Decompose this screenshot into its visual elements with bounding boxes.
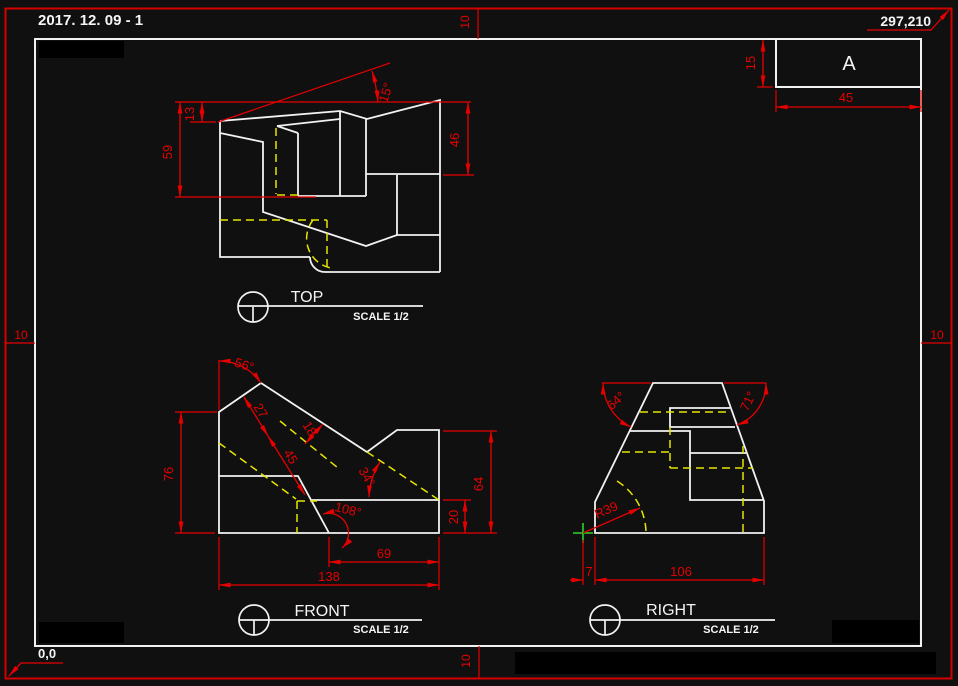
dim-46: 46 bbox=[447, 133, 462, 147]
paper-coord-label: 297,210 bbox=[880, 13, 931, 29]
origin-coord-label: 0,0 bbox=[38, 646, 56, 661]
front-view-geometry bbox=[219, 383, 439, 533]
cad-drawing-area[interactable]: 2017. 12. 09 - 1 297,210 0,0 A 10 10 10 … bbox=[0, 0, 958, 686]
mask-patch bbox=[832, 620, 919, 643]
dim-45: 45 bbox=[839, 90, 853, 105]
margin-label-left: 10 bbox=[14, 328, 28, 342]
view-label-top: TOP bbox=[291, 289, 324, 306]
outer-red-border bbox=[6, 9, 952, 679]
dim-angle-71: 71° bbox=[737, 389, 759, 413]
dim-angle-56: 56° bbox=[233, 355, 256, 375]
dim-angle-34: 34° bbox=[355, 464, 378, 489]
zone-label: A bbox=[842, 53, 856, 75]
origin-leader bbox=[9, 663, 63, 676]
mask-patch bbox=[39, 41, 124, 58]
view-scale-right: SCALE 1/2 bbox=[703, 624, 759, 636]
dim-18: 18 bbox=[300, 419, 320, 439]
dim-angle-15: 15° bbox=[376, 81, 396, 104]
mask-patch bbox=[39, 622, 124, 643]
view-label-right: RIGHT bbox=[646, 602, 696, 619]
dim-line-45b bbox=[268, 436, 305, 495]
right-view-dimensions bbox=[570, 383, 766, 585]
view-scale-top: SCALE 1/2 bbox=[353, 311, 409, 323]
dim-15: 15 bbox=[743, 56, 758, 70]
drawing-canvas[interactable]: 2017. 12. 09 - 1 297,210 0,0 A 10 10 10 … bbox=[0, 0, 958, 686]
dim-27: 27 bbox=[251, 401, 271, 421]
text-layer: 2017. 12. 09 - 1 297,210 0,0 A 10 10 10 … bbox=[14, 12, 944, 668]
dim-13: 13 bbox=[182, 107, 197, 121]
dim-20: 20 bbox=[446, 510, 461, 524]
view-scale-front: SCALE 1/2 bbox=[353, 624, 409, 636]
margin-label-bottom: 10 bbox=[459, 654, 473, 668]
dim-106: 106 bbox=[670, 564, 692, 579]
dim-7: 7 bbox=[585, 564, 592, 579]
dim-angle-64: 64° bbox=[604, 389, 629, 413]
view-label-front: FRONT bbox=[294, 603, 349, 620]
top-view-geometry bbox=[220, 100, 440, 272]
sheet-frame bbox=[5, 8, 952, 679]
dim-64: 64 bbox=[471, 477, 486, 491]
dim-138: 138 bbox=[318, 569, 340, 584]
dim-angle-108: 108° bbox=[333, 499, 363, 520]
dim-59: 59 bbox=[160, 145, 175, 159]
date-note: 2017. 12. 09 - 1 bbox=[38, 12, 143, 29]
dim-76: 76 bbox=[161, 467, 176, 481]
margin-label-right: 10 bbox=[930, 328, 944, 342]
dim-45b: 45 bbox=[281, 447, 301, 467]
margin-label-top: 10 bbox=[458, 15, 472, 29]
mask-patch bbox=[515, 652, 936, 674]
dim-69: 69 bbox=[377, 546, 391, 561]
inner-white-border bbox=[35, 39, 921, 646]
front-view-dimensions bbox=[175, 360, 497, 590]
